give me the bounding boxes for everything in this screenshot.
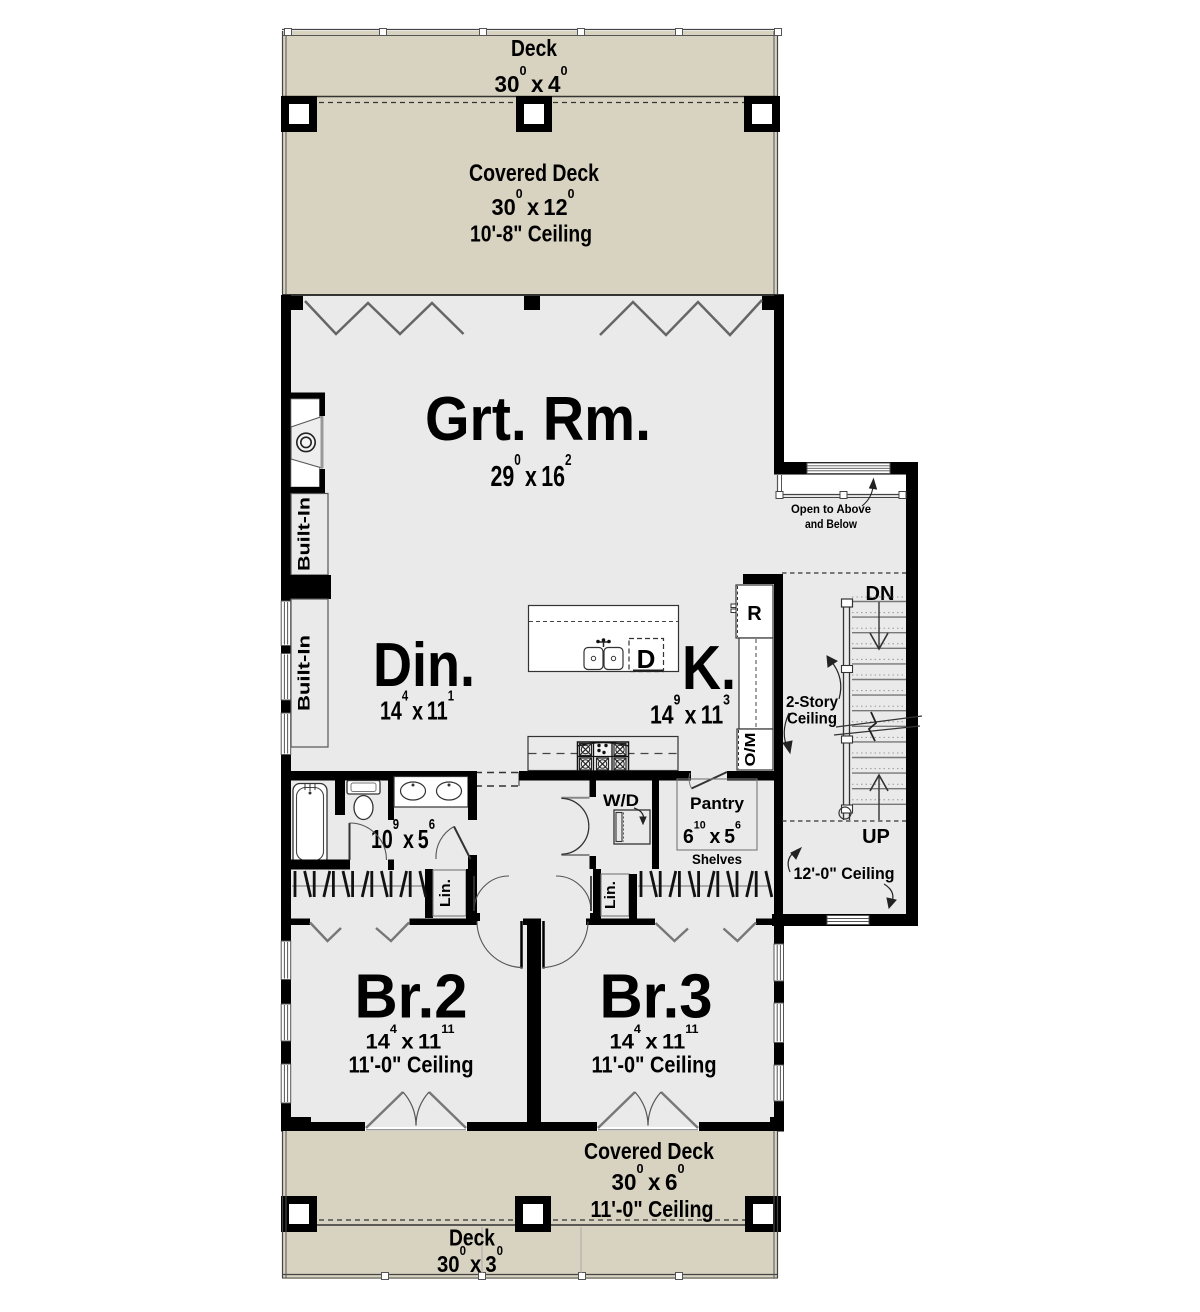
svg-text:Pantry: Pantry: [690, 794, 745, 813]
svg-text:UP: UP: [862, 826, 890, 848]
svg-text:Deck: Deck: [511, 35, 557, 61]
svg-text:D: D: [637, 644, 656, 674]
svg-text:and Below: and Below: [805, 517, 858, 531]
svg-text:Built-In: Built-In: [295, 497, 314, 571]
svg-text:Covered Deck: Covered Deck: [469, 160, 600, 187]
svg-text:11'-0" Ceiling: 11'-0" Ceiling: [591, 1196, 714, 1222]
svg-text:Grt. Rm.: Grt. Rm.: [425, 385, 651, 454]
svg-text:Din.: Din.: [373, 631, 475, 700]
svg-text:Covered Deck: Covered Deck: [584, 1138, 714, 1164]
svg-text:O/M: O/M: [742, 733, 759, 767]
svg-text:12'-0" Ceiling: 12'-0" Ceiling: [794, 864, 895, 883]
svg-text:11'-0" Ceiling: 11'-0" Ceiling: [592, 1052, 717, 1078]
svg-text:Built-In: Built-In: [295, 635, 314, 711]
svg-text:Br.2: Br.2: [355, 963, 468, 1032]
svg-text:Deck: Deck: [449, 1225, 495, 1251]
svg-text:Lin.: Lin.: [437, 879, 454, 907]
svg-text:Ceiling: Ceiling: [787, 711, 837, 728]
svg-text:2-Story: 2-Story: [786, 694, 838, 711]
svg-text:Br.3: Br.3: [600, 963, 713, 1032]
svg-text:10'-8" Ceiling: 10'-8" Ceiling: [470, 221, 592, 247]
svg-text:W/D: W/D: [603, 791, 639, 810]
svg-text:11'-0" Ceiling: 11'-0" Ceiling: [349, 1052, 474, 1078]
svg-text:Open to Above: Open to Above: [791, 502, 871, 516]
svg-text:Lin.: Lin.: [602, 881, 619, 909]
svg-text:Shelves: Shelves: [692, 851, 742, 867]
svg-text:R: R: [747, 603, 762, 625]
